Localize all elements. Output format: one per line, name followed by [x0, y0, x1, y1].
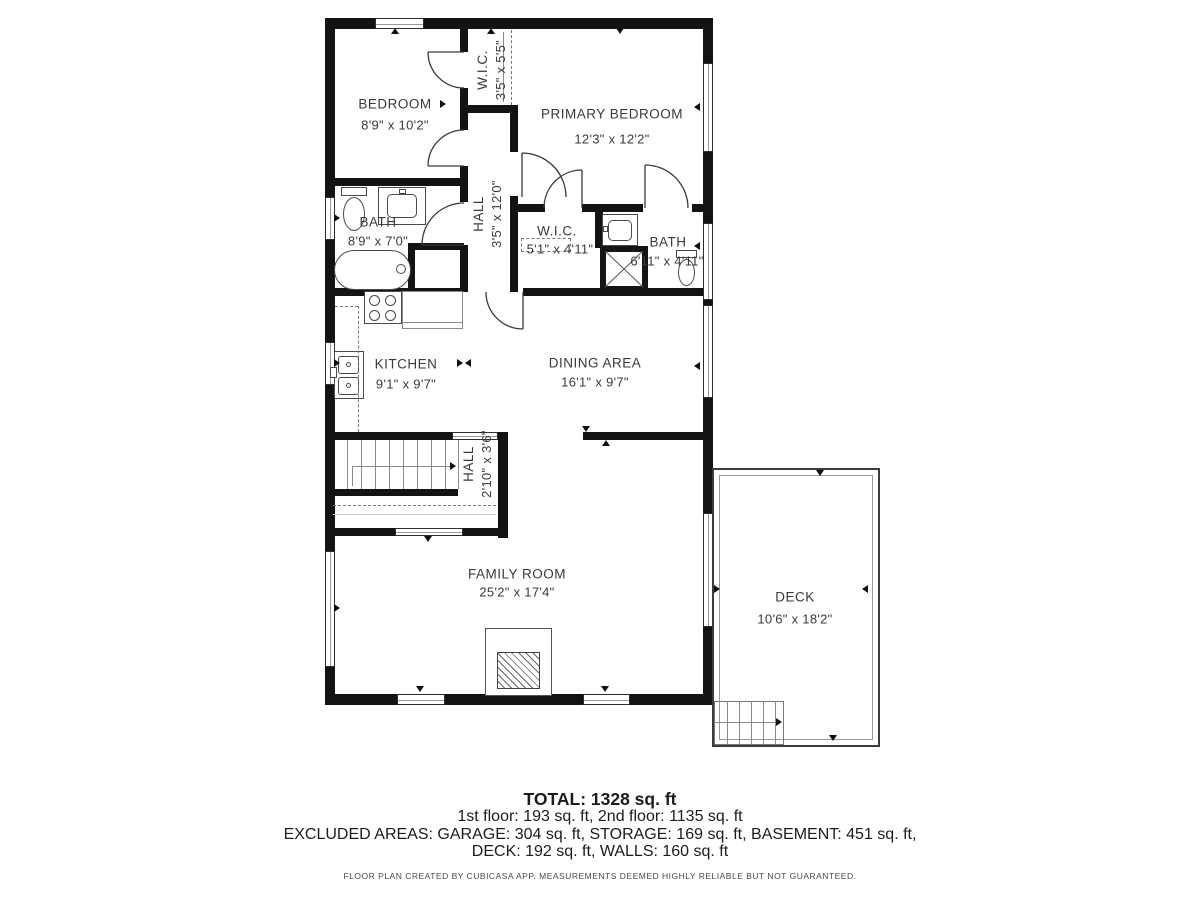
faucet-icon	[399, 189, 406, 194]
measure-tick-icon	[602, 440, 610, 446]
wall-segment	[325, 694, 397, 705]
measure-tick-icon	[714, 585, 720, 593]
measure-tick-icon	[424, 536, 432, 542]
summary-total: TOTAL: 1328 sq. ft	[0, 789, 1200, 810]
stair-tread	[751, 702, 752, 744]
floor-plan: BEDROOM 8'9" x 10'2" W.I.C. 3'5" x 5'5" …	[0, 0, 1200, 900]
counter-icon	[402, 291, 463, 329]
room-dims-deck: 10'6" x 18'2"	[757, 612, 832, 627]
deck-stair-arrow-icon	[776, 718, 782, 726]
measure-tick-icon	[601, 686, 609, 692]
window	[703, 63, 713, 152]
measure-tick-icon	[694, 362, 700, 370]
door-arc	[522, 153, 566, 197]
stair-tread	[763, 702, 764, 744]
stair-tread	[347, 440, 348, 489]
room-label-hall-lower: HALL 2'10" x 3'6"	[460, 430, 496, 498]
measure-tick-icon	[694, 242, 700, 250]
room-name: HALL	[460, 430, 478, 498]
wall-segment	[582, 204, 643, 212]
measure-tick-icon	[582, 426, 590, 432]
window	[395, 528, 463, 536]
room-dims-primary-bedroom: 12'3" x 12'2"	[574, 132, 649, 147]
wall-segment	[630, 694, 713, 705]
wall-segment	[510, 212, 518, 292]
measure-tick-icon	[465, 359, 471, 367]
wall-segment	[463, 528, 508, 536]
room-label-bedroom: BEDROOM	[358, 97, 431, 112]
window	[375, 18, 424, 29]
door-arc	[428, 130, 464, 166]
faucet-icon	[330, 367, 337, 378]
stair-tread	[445, 440, 446, 489]
wall-segment	[498, 432, 508, 538]
measure-tick-icon	[829, 735, 837, 741]
under-stair-dashed-line	[333, 505, 496, 506]
measure-tick-icon	[816, 470, 824, 476]
measure-tick-icon	[862, 585, 868, 593]
wall-segment	[325, 528, 395, 536]
room-label-deck: DECK	[775, 590, 815, 605]
fireplace-icon	[497, 652, 540, 689]
stair-tread	[739, 702, 740, 744]
summary-excluded-2: DECK: 192 sq. ft, WALLS: 160 sq. ft	[0, 843, 1200, 861]
stair-arrow-icon	[450, 462, 456, 470]
wall-segment	[583, 432, 713, 440]
tub-faucet-icon	[396, 264, 406, 274]
door-arc	[486, 292, 523, 329]
measure-tick-icon	[616, 28, 624, 34]
wall-segment	[460, 186, 468, 202]
window	[583, 694, 630, 705]
measure-tick-icon	[334, 359, 340, 367]
stair-tread	[417, 440, 418, 489]
measure-tick-icon	[694, 103, 700, 111]
window	[703, 223, 713, 300]
measure-tick-icon	[334, 604, 340, 612]
wall-segment	[510, 105, 518, 152]
measure-tick-icon	[440, 100, 446, 108]
room-dims-family-room: 25'2" x 17'4"	[479, 585, 554, 600]
room-name: W.I.C.	[474, 40, 492, 100]
measure-tick-icon	[334, 214, 340, 222]
stair-edge	[458, 440, 459, 489]
room-label-primary-bedroom: PRIMARY BEDROOM	[541, 107, 683, 122]
stair-direction-line	[352, 466, 353, 486]
summary-excluded-1: EXCLUDED AREAS: GARAGE: 304 sq. ft, STOR…	[0, 826, 1200, 844]
stair-tread	[361, 440, 362, 489]
room-label-hall-upper: HALL 3'5" x 12'0"	[470, 180, 506, 248]
burner-icon	[385, 295, 396, 306]
door-arc	[428, 52, 464, 88]
wall-segment	[703, 18, 713, 63]
stair-tread	[727, 702, 728, 744]
wall-segment	[703, 152, 713, 223]
measure-tick-icon	[457, 359, 463, 367]
room-dims-kitchen: 9'1" x 9'7"	[376, 377, 436, 392]
drain-icon	[346, 383, 351, 388]
closet-dashed-line	[511, 30, 512, 105]
room-dims-wic-mid: 5'1" x 4'11"	[527, 242, 594, 257]
summary-floors: 1st floor: 193 sq. ft, 2nd floor: 1135 s…	[0, 808, 1200, 826]
wall-segment	[424, 18, 713, 29]
wall-segment	[325, 18, 335, 197]
wall-segment	[325, 489, 458, 496]
room-label-wic-mid: W.I.C.	[537, 224, 577, 239]
stair-tread	[375, 440, 376, 489]
room-name: HALL	[470, 180, 488, 248]
door-arc	[645, 165, 688, 208]
measure-tick-icon	[487, 28, 495, 34]
stair-tread	[403, 440, 404, 489]
wall-segment	[325, 178, 468, 186]
room-dims-bedroom: 8'9" x 10'2"	[361, 118, 429, 133]
room-label-kitchen: KITCHEN	[375, 357, 438, 372]
room-dims-bath-right: 6'11" x 4'11"	[630, 254, 703, 269]
counter-dashed-edge	[358, 306, 359, 432]
stair-direction-line	[352, 466, 450, 467]
room-label-bath-left: BATH	[359, 215, 396, 230]
room-label-wic-top: W.I.C. 3'5" x 5'5"	[474, 40, 510, 100]
wall-segment	[510, 204, 545, 212]
wall-segment	[692, 204, 713, 212]
faucet-icon	[603, 226, 608, 232]
door-arc	[422, 203, 464, 245]
toilet-tank-icon	[341, 187, 367, 196]
room-dims-bath-left: 8'9" x 7'0"	[348, 234, 408, 249]
wall-segment	[325, 432, 452, 440]
window	[397, 694, 445, 705]
wall-segment	[408, 243, 464, 250]
room-label-dining: DINING AREA	[549, 356, 642, 371]
window	[703, 305, 713, 398]
door-arc	[544, 170, 582, 208]
room-dims: 3'5" x 12'0"	[488, 180, 506, 248]
burner-icon	[369, 295, 380, 306]
sink-basin-icon	[608, 220, 632, 241]
stair-tread	[431, 440, 432, 489]
summary-disclaimer: FLOOR PLAN CREATED BY CUBICASA APP. MEAS…	[0, 871, 1200, 881]
wall-segment	[460, 245, 468, 292]
room-dims: 3'5" x 5'5"	[492, 40, 510, 100]
room-dims-dining: 16'1" x 9'7"	[561, 375, 629, 390]
measure-tick-icon	[391, 28, 399, 34]
drain-icon	[346, 362, 351, 367]
counter-dashed-edge	[335, 306, 358, 307]
room-dims: 2'10" x 3'6"	[478, 430, 496, 498]
measure-tick-icon	[416, 686, 424, 692]
wall-segment	[460, 29, 468, 52]
wall-segment	[460, 88, 468, 130]
deck-staircase	[714, 701, 784, 745]
counter-line	[403, 322, 462, 323]
wall-segment	[460, 166, 468, 186]
deck-stair-direction-line	[714, 722, 780, 723]
burner-icon	[369, 310, 380, 321]
room-label-family-room: FAMILY ROOM	[468, 567, 566, 582]
stair-tread	[389, 440, 390, 489]
under-stair-line	[333, 514, 496, 515]
room-label-bath-right: BATH	[649, 235, 686, 250]
burner-icon	[385, 310, 396, 321]
